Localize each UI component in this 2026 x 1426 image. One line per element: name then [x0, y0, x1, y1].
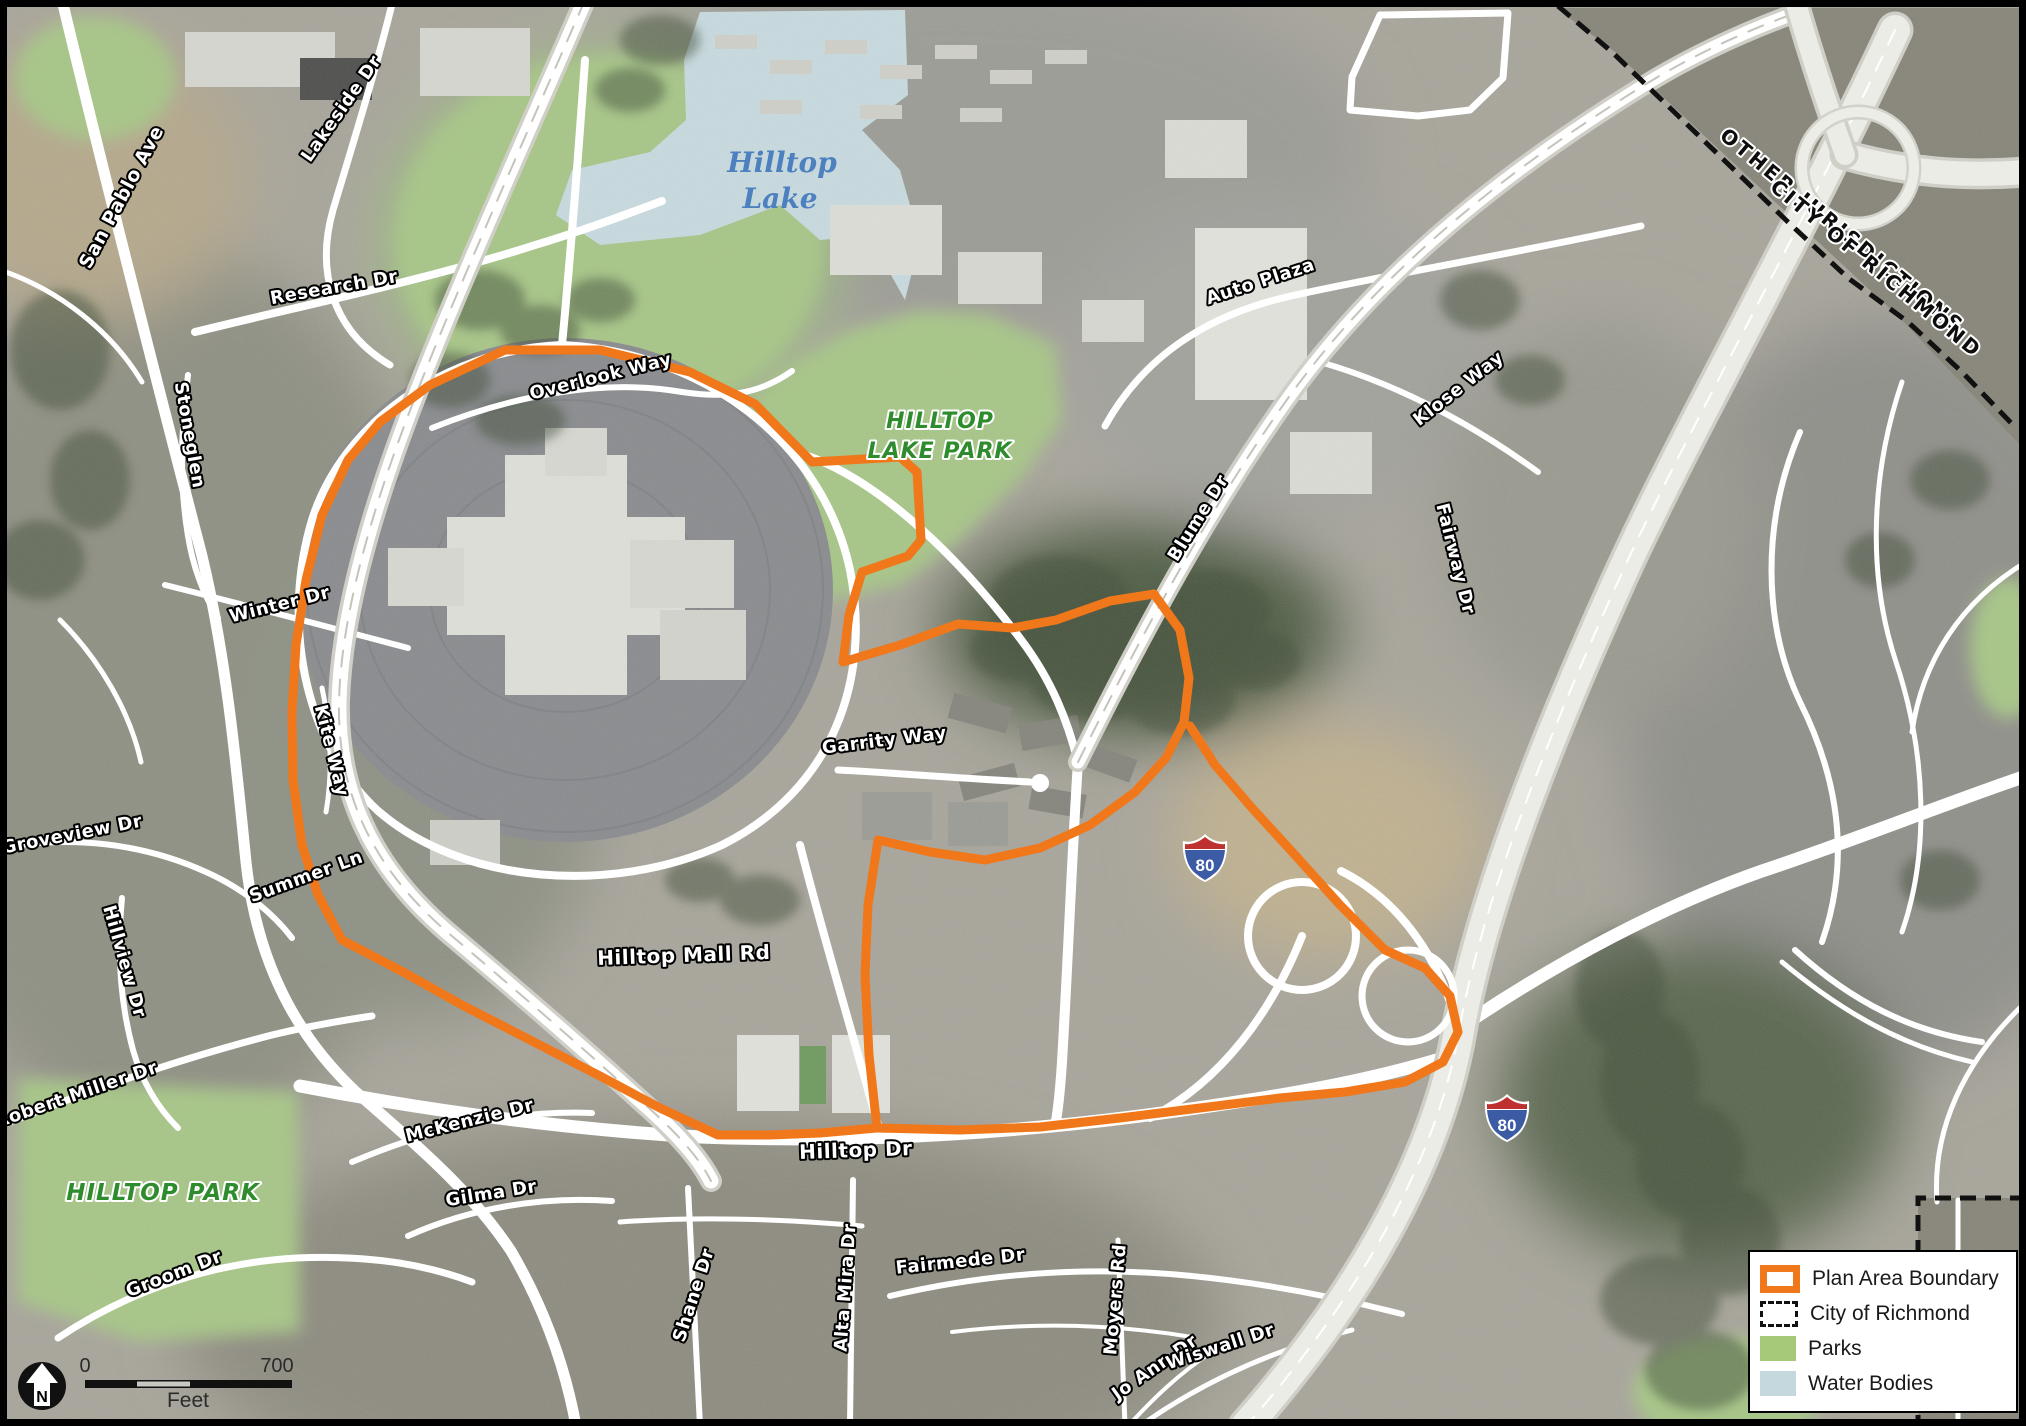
- map-legend: Plan Area Boundary City of Richmond Park…: [1748, 1250, 2018, 1413]
- plan-area-boundary-swatch: [1760, 1265, 1800, 1293]
- street-label: Hilltop Dr: [799, 1136, 913, 1164]
- legend-label: Plan Area Boundary: [1812, 1267, 1999, 1291]
- legend-label: Water Bodies: [1808, 1372, 1933, 1396]
- svg-text:Feet: Feet: [167, 1389, 209, 1412]
- legend-item-city-of-richmond: City of Richmond: [1760, 1296, 2016, 1331]
- aerial-map: 8080San Pablo AveLakeside DrResearch DrO…: [0, 0, 2026, 1426]
- legend-item-water-bodies: Water Bodies: [1760, 1366, 2016, 1401]
- svg-text:80: 80: [1498, 1116, 1517, 1135]
- svg-text:N: N: [36, 1389, 48, 1406]
- legend-item-plan-area: Plan Area Boundary: [1760, 1261, 2016, 1296]
- park-label: LAKE PARK: [868, 439, 1014, 464]
- map-canvas: 8080San Pablo AveLakeside DrResearch DrO…: [0, 0, 2026, 1426]
- svg-text:700: 700: [260, 1355, 293, 1377]
- svg-text:0: 0: [79, 1355, 90, 1377]
- lake-label: Hilltop: [726, 146, 837, 179]
- legend-label: City of Richmond: [1810, 1302, 1970, 1326]
- north-arrow: N: [18, 1362, 66, 1410]
- water-bodies-swatch: [1760, 1371, 1796, 1396]
- aerial-noise: [0, 0, 2026, 1426]
- legend-item-parks: Parks: [1760, 1331, 2016, 1366]
- lake-label: Lake: [741, 182, 817, 215]
- parks-swatch: [1760, 1336, 1796, 1361]
- svg-text:80: 80: [1196, 856, 1215, 875]
- park-label: HILLTOP PARK: [66, 1180, 261, 1206]
- park-label: HILLTOP: [886, 409, 994, 434]
- city-boundary-swatch: [1760, 1301, 1798, 1327]
- legend-label: Parks: [1808, 1337, 1862, 1361]
